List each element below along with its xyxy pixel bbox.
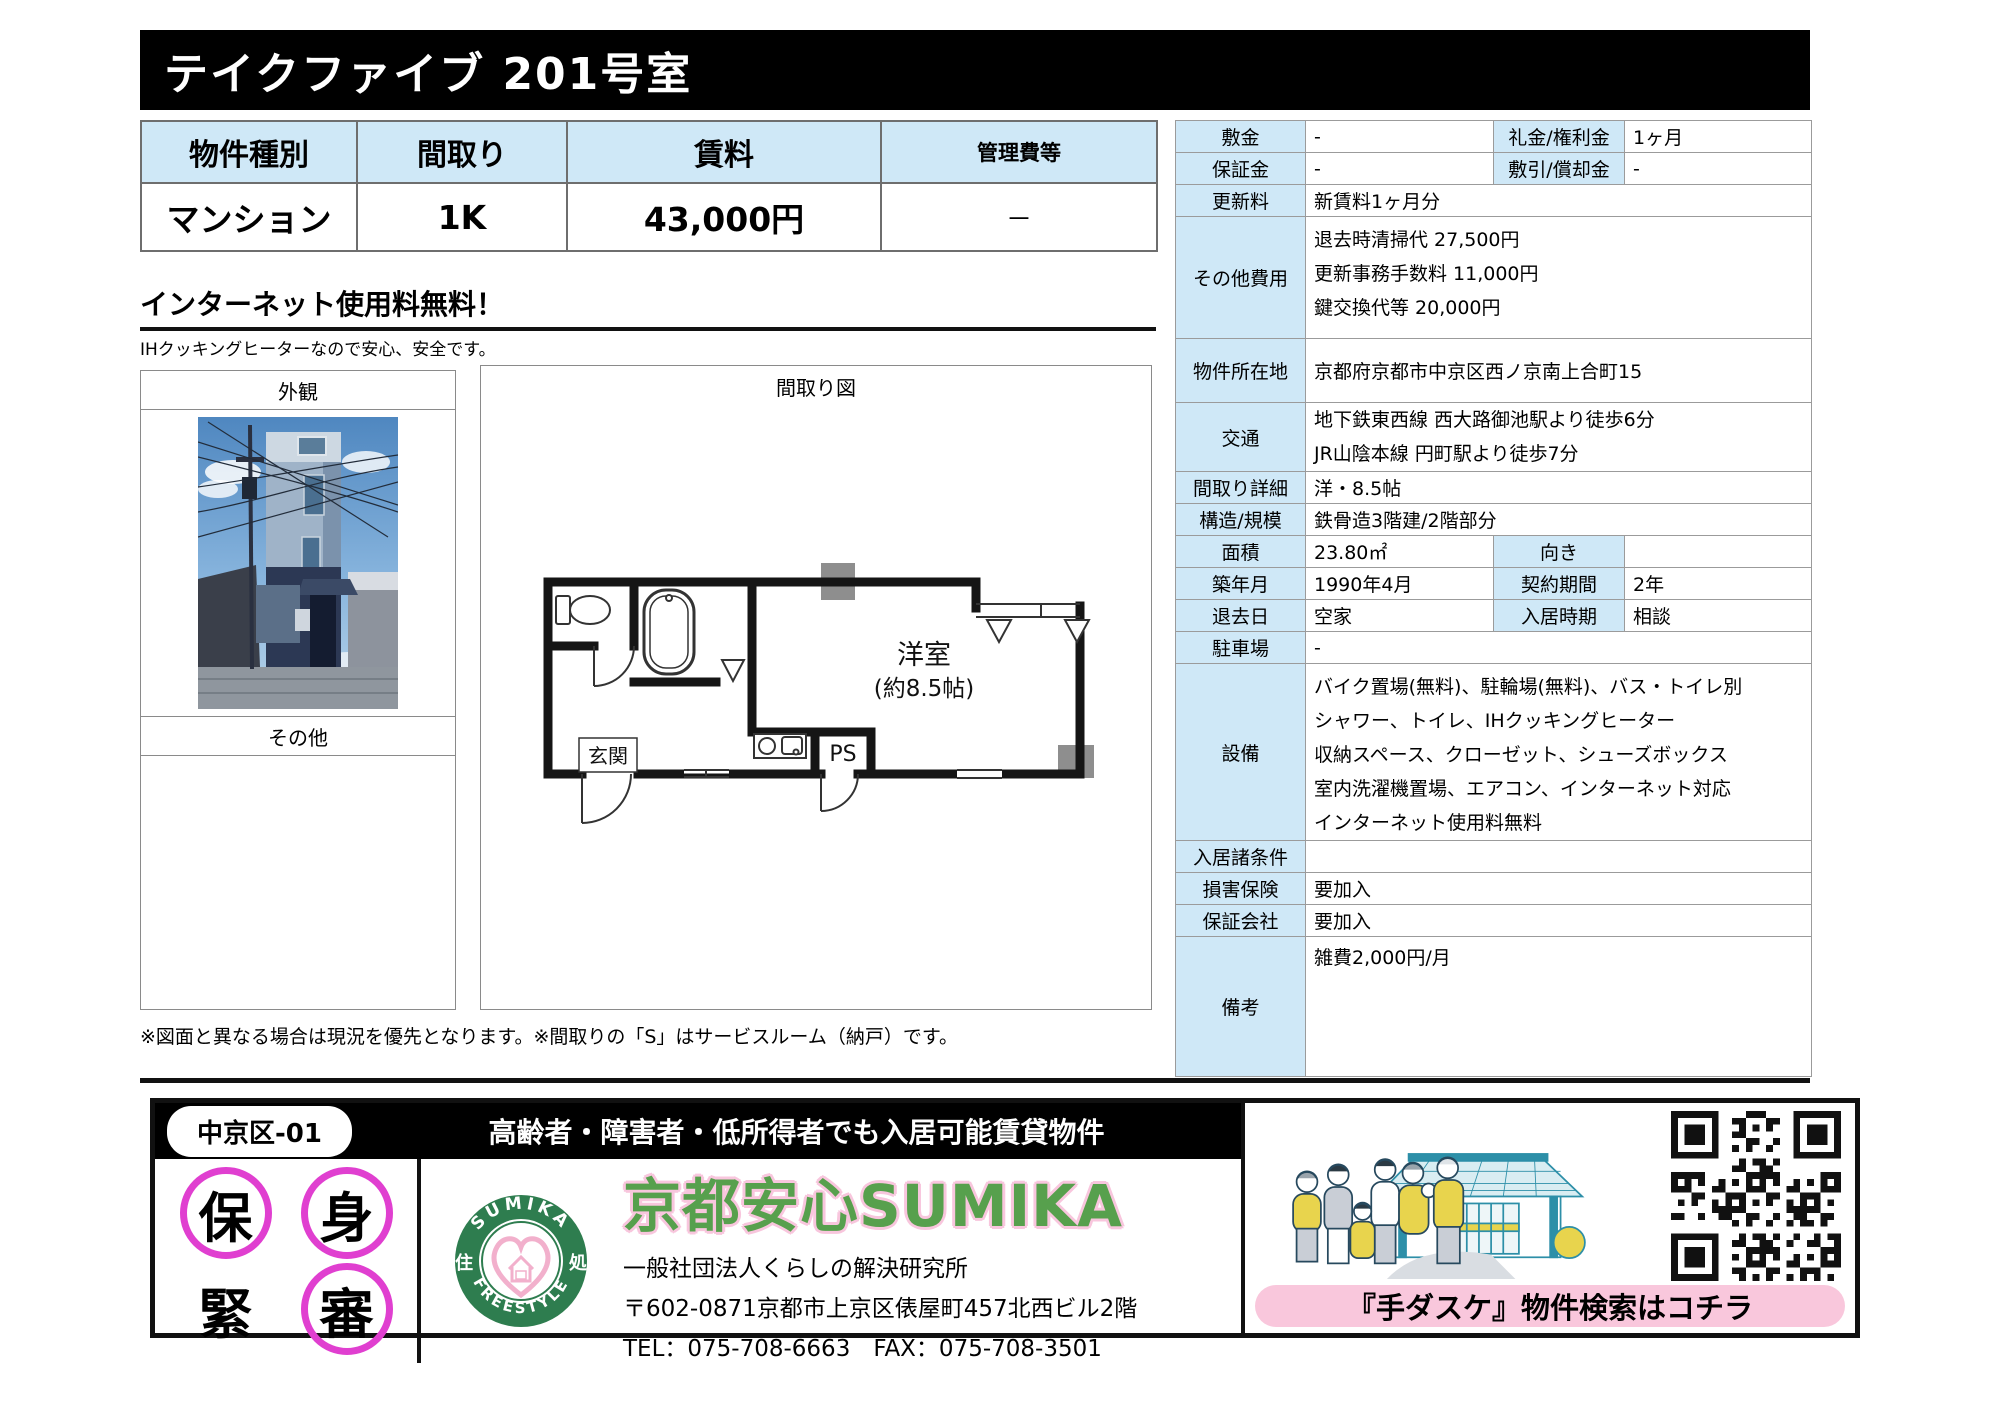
row-label: 面積 (1176, 536, 1306, 568)
row-value: - (1306, 632, 1812, 664)
company-name: 一般社団法人くらしの解決研究所 (623, 1249, 1137, 1283)
row-value: 空家 (1306, 600, 1494, 632)
stamp-shin: 身 (301, 1167, 393, 1259)
row-value: 要加入 (1306, 873, 1812, 905)
row-value: 23.80㎡ (1306, 536, 1494, 568)
row-label: 物件所在地 (1176, 339, 1306, 403)
row-line: バイク置場(無料)、駐輪場(無料)、バス・トイレ別 (1314, 670, 1803, 704)
row-line: 更新事務手数料 11,000円 (1314, 257, 1803, 291)
row-value2: 相談 (1625, 600, 1812, 632)
stamp-box: 保 身 緊 審 (155, 1159, 421, 1363)
table-row: 損害保険 要加入 (1176, 873, 1812, 905)
row-label: 入居諸条件 (1176, 841, 1306, 873)
table-row: 構造/規模 鉄骨造3階建/2階部分 (1176, 504, 1812, 536)
sumika-logo: SUMIKA FREESTYLE 住 処 (437, 1177, 605, 1345)
company-title: 京都安心SUMIKA (623, 1159, 1137, 1243)
row-label: 退去日 (1176, 600, 1306, 632)
exterior-photo (141, 410, 455, 717)
table-row: 保証会社 要加入 (1176, 905, 1812, 937)
row-label2: 礼金/権利金 (1494, 121, 1625, 153)
table-row: 備考 雑費2,000円/月 (1176, 937, 1812, 1077)
catch-copy: インターネット使用料無料！ IHクッキングヒーターなので安心、安全です。 (140, 283, 1156, 360)
row-line: 鍵交換代等 20,000円 (1314, 291, 1803, 325)
summary-table: 物件種別 間取り 賃料 管理費等 マンション 1K 43,000円 － (140, 120, 1158, 252)
family-house-illustration (1259, 1114, 1619, 1279)
row-line: 収納スペース、クローゼット、シューズボックス (1314, 738, 1803, 772)
summary-header-type: 物件種別 (141, 121, 357, 183)
other-label: その他 (141, 717, 455, 756)
summary-value-row: マンション 1K 43,000円 － (141, 183, 1157, 251)
other-photo-area (141, 756, 455, 1011)
area-tag-badge: 中京区-01 (167, 1106, 352, 1157)
summary-value-layout: 1K (357, 183, 567, 251)
row-label2: 敷引/償却金 (1494, 153, 1625, 185)
table-row: 退去日 空家 入居時期 相談 (1176, 600, 1812, 632)
disclaimer-note: ※図面と異なる場合は現況を優先となります。※間取りの「S」はサービスルーム（納戸… (140, 1022, 958, 1049)
row-label2: 向き (1494, 536, 1625, 568)
catch-headline: インターネット使用料無料！ (140, 283, 1156, 331)
logo-right-char: 処 (569, 1252, 588, 1274)
table-row: 物件所在地 京都府京都市中京区西ノ京南上合町15 (1176, 339, 1812, 403)
floorplan-entrance-label: 玄関 (588, 744, 628, 768)
table-row: 入居諸条件 (1176, 841, 1812, 873)
row-label: 交通 (1176, 403, 1306, 472)
table-row: その他費用 退去時清掃代 27,500円 更新事務手数料 11,000円 鍵交換… (1176, 217, 1812, 339)
property-title-banner: テイクファイブ 201号室 (140, 30, 1810, 110)
stamp-ho: 保 (180, 1167, 272, 1259)
row-label: 更新料 (1176, 185, 1306, 217)
row-value: バイク置場(無料)、駐輪場(無料)、バス・トイレ別 シャワー、トイレ、IHクッキ… (1306, 664, 1812, 841)
table-row: 面積 23.80㎡ 向き (1176, 536, 1812, 568)
row-label: 保証金 (1176, 153, 1306, 185)
table-row: 築年月 1990年4月 契約期間 2年 (1176, 568, 1812, 600)
company-address: 〒602-0871京都市上京区俵屋町457北西ビル2階 (623, 1289, 1137, 1323)
agency-footer: 中京区-01 高齢者・障害者・低所得者でも入居可能賃貸物件 保 身 緊 審 (150, 1098, 1860, 1338)
row-line: 退去時清掃代 27,500円 (1314, 223, 1803, 257)
row-value: 地下鉄東西線 西大路御池駅より徒歩6分 JR山陰本線 円町駅より徒歩7分 (1306, 403, 1812, 472)
row-label: その他費用 (1176, 217, 1306, 339)
row-label: 駐車場 (1176, 632, 1306, 664)
row-label: 設備 (1176, 664, 1306, 841)
qr-code (1671, 1111, 1841, 1281)
table-row: 駐車場 - (1176, 632, 1812, 664)
floorplan-room-label: 洋室 (897, 640, 951, 671)
search-banner: 『手ダスケ』物件検索はコチラ (1255, 1285, 1845, 1327)
divider-rule (140, 1078, 1810, 1083)
property-flyer: テイクファイブ 201号室 物件種別 間取り 賃料 管理費等 マンション 1K … (0, 0, 2000, 1413)
row-label: 築年月 (1176, 568, 1306, 600)
row-line: 地下鉄東西線 西大路御池駅より徒歩6分 (1314, 403, 1803, 437)
floorplan-label: 間取り図 (481, 366, 1151, 406)
building-photo-illustration (198, 417, 398, 709)
row-line: 室内洗濯機置場、エアコン、インターネット対応 (1314, 772, 1803, 806)
logo-left-char: 住 (455, 1252, 473, 1274)
summary-value-fees: － (881, 183, 1157, 251)
row-label2: 契約期間 (1494, 568, 1625, 600)
footer-banner-text: 高齢者・障害者・低所得者でも入居可能賃貸物件 (352, 1111, 1241, 1151)
row-value: 洋・8.5帖 (1306, 472, 1812, 504)
floorplan-room-size: (約8.5帖) (873, 676, 974, 702)
row-value: 1990年4月 (1306, 568, 1494, 600)
table-row: 間取り詳細 洋・8.5帖 (1176, 472, 1812, 504)
floorplan-ps-label: PS (829, 742, 856, 767)
table-row: 保証金 - 敷引/償却金 - (1176, 153, 1812, 185)
row-value: 雑費2,000円/月 (1306, 937, 1812, 1077)
summary-header-row: 物件種別 間取り 賃料 管理費等 (141, 121, 1157, 183)
company-tel-fax: TEL：075-708-6663 FAX：075-708-3501 (623, 1329, 1137, 1363)
summary-header-layout: 間取り (357, 121, 567, 183)
property-title: テイクファイブ 201号室 (140, 38, 692, 102)
row-label: 保証会社 (1176, 905, 1306, 937)
floorplan-drawing: 洋室 (約8.5帖) 玄関 PS (534, 546, 1099, 846)
stamp-kin: 緊 (187, 1270, 265, 1348)
row-label: 備考 (1176, 937, 1306, 1077)
row-value2: - (1625, 153, 1812, 185)
row-line: インターネット使用料無料 (1314, 806, 1803, 840)
stamp-sa: 審 (301, 1263, 393, 1355)
footer-banner-bar: 中京区-01 高齢者・障害者・低所得者でも入居可能賃貸物件 (155, 1103, 1241, 1159)
catch-subtext: IHクッキングヒーターなので安心、安全です。 (140, 335, 1156, 360)
row-line: JR山陰本線 円町駅より徒歩7分 (1314, 437, 1803, 471)
row-line: シャワー、トイレ、IHクッキングヒーター (1314, 704, 1803, 738)
summary-header-fees: 管理費等 (881, 121, 1157, 183)
row-value (1306, 841, 1812, 873)
row-label: 間取り詳細 (1176, 472, 1306, 504)
row-label: 損害保険 (1176, 873, 1306, 905)
floorplan-panel: 間取り図 (480, 365, 1152, 1010)
row-value2 (1625, 536, 1812, 568)
exterior-label: 外観 (141, 371, 455, 410)
row-value: 京都府京都市中京区西ノ京南上合町15 (1306, 339, 1812, 403)
row-value: 新賃料1ヶ月分 (1306, 185, 1812, 217)
row-value: - (1306, 121, 1494, 153)
table-row: 交通 地下鉄東西線 西大路御池駅より徒歩6分 JR山陰本線 円町駅より徒歩7分 (1176, 403, 1812, 472)
summary-value-type: マンション (141, 183, 357, 251)
row-value: 要加入 (1306, 905, 1812, 937)
summary-value-rent: 43,000円 (567, 183, 881, 251)
row-value: 退去時清掃代 27,500円 更新事務手数料 11,000円 鍵交換代等 20,… (1306, 217, 1812, 339)
photo-panel: 外観 (140, 370, 456, 1010)
details-table: 敷金 - 礼金/権利金 1ヶ月 保証金 - 敷引/償却金 - 更新料 新賃料1ヶ… (1175, 120, 1812, 1077)
row-label: 構造/規模 (1176, 504, 1306, 536)
row-value2: 1ヶ月 (1625, 121, 1812, 153)
row-label2: 入居時期 (1494, 600, 1625, 632)
row-value: - (1306, 153, 1494, 185)
table-row: 設備 バイク置場(無料)、駐輪場(無料)、バス・トイレ別 シャワー、トイレ、IH… (1176, 664, 1812, 841)
table-row: 敷金 - 礼金/権利金 1ヶ月 (1176, 121, 1812, 153)
table-row: 更新料 新賃料1ヶ月分 (1176, 185, 1812, 217)
row-value2: 2年 (1625, 568, 1812, 600)
row-value: 鉄骨造3階建/2階部分 (1306, 504, 1812, 536)
summary-header-rent: 賃料 (567, 121, 881, 183)
row-label: 敷金 (1176, 121, 1306, 153)
